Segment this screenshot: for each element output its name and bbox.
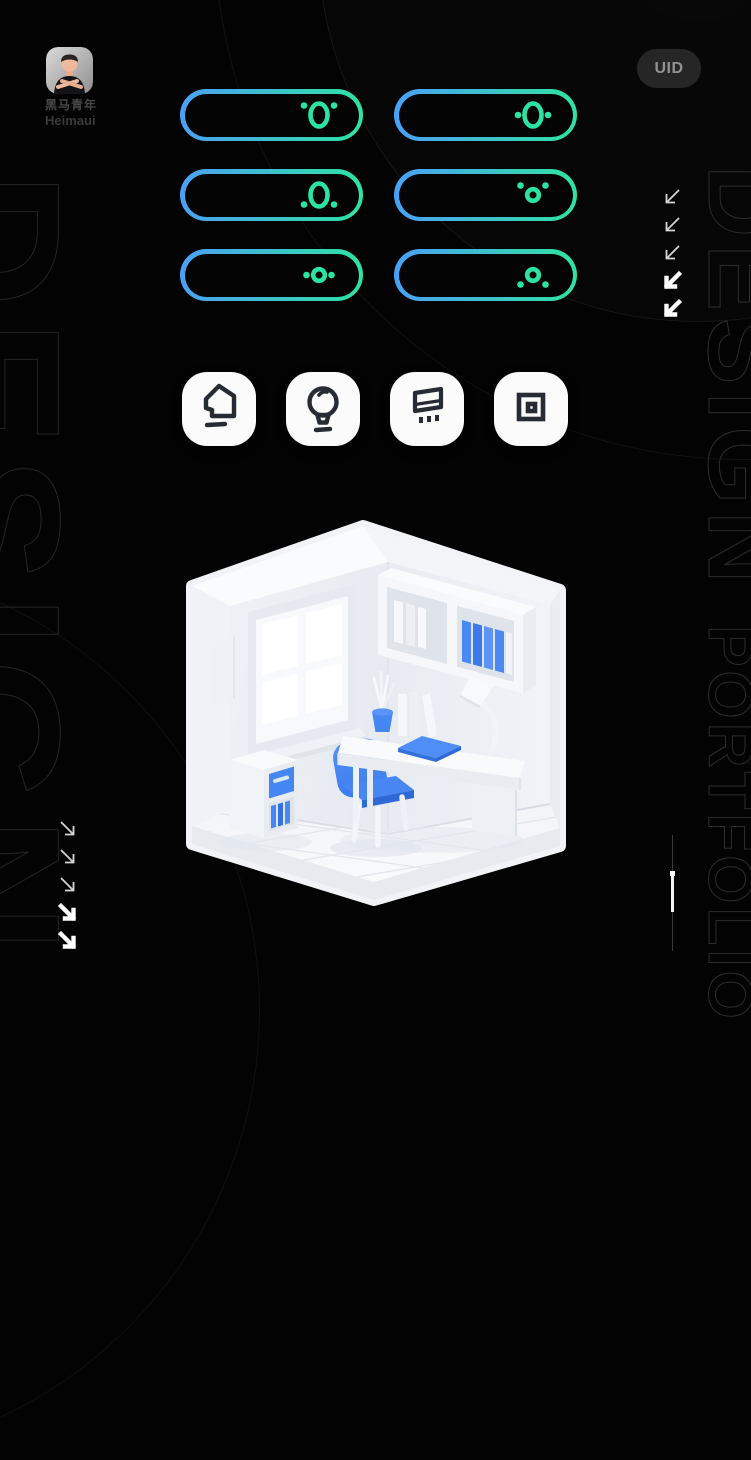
tile-billboard[interactable]	[390, 372, 464, 446]
toggle-state-icon	[295, 258, 343, 292]
toggle-state-icon	[509, 178, 557, 212]
arrow-down-right-icon	[57, 818, 80, 840]
toggle-state-icon	[295, 178, 343, 212]
arrow-down-right-icon	[57, 846, 80, 868]
arrow-down-left-icon	[660, 270, 683, 292]
toggle-pill-face	[399, 174, 573, 217]
arrow-down-right-icon	[57, 874, 80, 896]
toggle-state-icon	[509, 258, 557, 292]
toggle-pill-3-large-bottom[interactable]	[180, 169, 363, 221]
toggle-grid	[180, 89, 577, 301]
tile-frame[interactable]	[494, 372, 568, 446]
lightbulb-icon	[286, 372, 360, 446]
toggle-pill-face	[185, 94, 359, 137]
right-watermark-word1: DESIGN	[687, 165, 751, 625]
room-illustration	[170, 508, 590, 926]
tile-home[interactable]	[182, 372, 256, 446]
toggle-pill-6-small-bottom[interactable]	[394, 249, 577, 301]
arrow-down-right-icon	[57, 902, 80, 924]
toggle-pill-5-small-middle[interactable]	[180, 249, 363, 301]
frame-icon	[494, 372, 568, 446]
toggle-pill-face	[399, 254, 573, 297]
tile-lightbulb[interactable]	[286, 372, 360, 446]
billboard-icon	[390, 372, 464, 446]
scroll-thumb[interactable]	[671, 875, 674, 912]
arrow-down-right-icon	[57, 930, 80, 952]
arrow-down-left-icon	[660, 214, 683, 236]
scroll-indicator[interactable]	[672, 835, 673, 951]
uid-badge-label: UID	[654, 60, 683, 78]
home-icon	[182, 372, 256, 446]
toggle-pill-face	[399, 94, 573, 137]
profile-name-zh: 黑马青年	[45, 98, 135, 113]
icon-tile-row	[182, 372, 568, 446]
avatar[interactable]	[46, 47, 93, 94]
toggle-pill-4-small-top[interactable]	[394, 169, 577, 221]
uid-badge[interactable]: UID	[637, 49, 701, 88]
toggle-pill-1-large-top[interactable]	[180, 89, 363, 141]
isometric-room	[170, 508, 590, 926]
toggle-pill-face	[185, 174, 359, 217]
arrow-stack-right	[660, 186, 683, 320]
toggle-state-icon	[295, 98, 343, 132]
memoji-avatar-icon	[46, 47, 93, 94]
arrow-down-left-icon	[660, 242, 683, 264]
profile-names: 黑马青年 Heimaui	[45, 98, 135, 129]
left-vertical-watermark: DESIGN	[0, 172, 102, 965]
arrow-down-left-icon	[660, 186, 683, 208]
right-vertical-watermark: DESIGN PORTFOLIO	[685, 165, 751, 1023]
toggle-pill-2-large-middle[interactable]	[394, 89, 577, 141]
arrow-down-left-icon	[660, 298, 683, 320]
toggle-state-icon	[509, 98, 557, 132]
toggle-pill-face	[185, 254, 359, 297]
right-watermark-word2: PORTFOLIO	[695, 625, 751, 1023]
arrow-stack-bottom-left	[57, 818, 80, 952]
profile-name-en: Heimaui	[45, 113, 135, 129]
